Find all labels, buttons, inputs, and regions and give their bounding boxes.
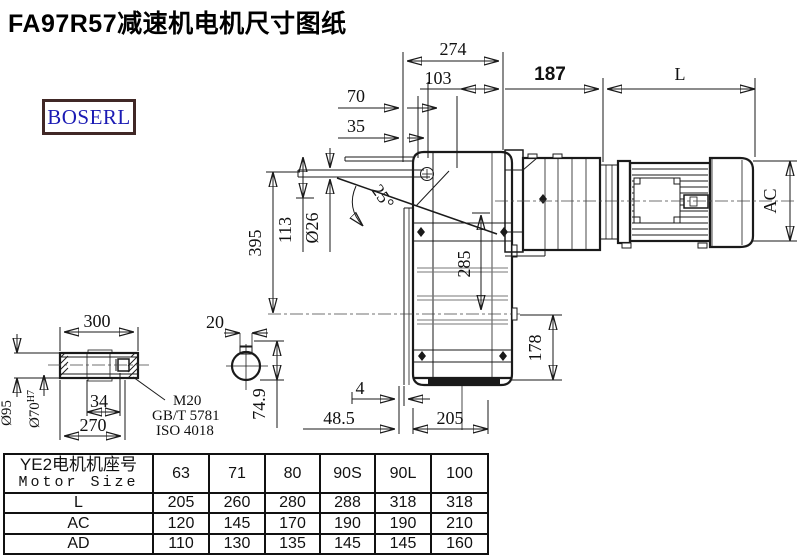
cell-AC-80: 170 (265, 513, 320, 534)
cell-AC-63: 120 (153, 513, 209, 534)
cell-AD-63: 110 (153, 534, 209, 554)
cell-AC-90S: 190 (320, 513, 375, 534)
dim-20: 20 (206, 312, 224, 332)
row-label-AD: AD (4, 534, 153, 554)
dim-70: 70 (347, 86, 365, 106)
col-90L: 90L (375, 454, 431, 493)
cell-L-90L: 318 (375, 493, 431, 513)
dim-103: 103 (425, 68, 452, 88)
cell-L-80: 280 (265, 493, 320, 513)
col-90S: 90S (320, 454, 375, 493)
col-63: 63 (153, 454, 209, 493)
bolt-standard-iso: ISO 4018 (156, 423, 214, 439)
table-row-AC: AC 120 145 170 190 190 210 (4, 513, 488, 534)
cell-L-100: 318 (431, 493, 488, 513)
table-row-L: L 205 260 280 288 318 318 (4, 493, 488, 513)
dim-270: 270 (80, 415, 107, 435)
cell-AD-80: 135 (265, 534, 320, 554)
dim-48-5: 48.5 (323, 408, 355, 428)
top-dimensions: 274 103 70 35 (338, 39, 503, 168)
cell-AC-71: 145 (209, 513, 265, 534)
drawing-sheet: FA97R57减速机电机尺寸图纸 BOSERL 274 103 70 (0, 0, 800, 555)
dim-74-9: 74.9 (249, 388, 269, 420)
dim-300: 300 (84, 311, 111, 331)
dim-205: 205 (437, 408, 464, 428)
col-80: 80 (265, 454, 320, 493)
dim-113: 113 (275, 217, 295, 243)
dim-274: 274 (440, 39, 467, 59)
table-header-motor-size: YE2电机机座号 Motor Size (4, 454, 153, 493)
gearbox-housing (268, 152, 520, 385)
dim-25deg: 25° (367, 181, 398, 213)
input-shaft-lever (298, 157, 497, 234)
cell-AD-90L: 145 (375, 534, 431, 554)
cell-AC-90L: 190 (375, 513, 431, 534)
cell-L-71: 260 (209, 493, 265, 513)
dim-34: 34 (90, 391, 108, 411)
dim-70H7: Ø70H7 (26, 390, 43, 428)
cell-AC-100: 210 (431, 513, 488, 534)
bolt-size-label: M20 (173, 393, 201, 409)
dim-35: 35 (347, 116, 365, 136)
cell-L-63: 205 (153, 493, 209, 513)
dim-26: Ø26 (302, 213, 322, 244)
col-71: 71 (209, 454, 265, 493)
motor-size-table: YE2电机机座号 Motor Size 63 71 80 90S 90L 100… (3, 453, 489, 555)
dim-187: 187 (534, 64, 566, 85)
dim-4: 4 (356, 378, 365, 398)
bottom-dimensions: 4 48.5 205 (303, 378, 488, 434)
dim-178: 178 (525, 335, 545, 362)
motor (495, 158, 795, 248)
r57-gear-unit (505, 150, 600, 256)
dim-95: Ø95 (0, 400, 15, 426)
dim-285: 285 (454, 251, 474, 278)
table-row-AD: AD 110 130 135 145 145 160 (4, 534, 488, 554)
dim-395: 395 (245, 230, 265, 257)
bolt-leader-line (133, 377, 165, 400)
cell-AD-90S: 145 (320, 534, 375, 554)
col-100: 100 (431, 454, 488, 493)
left-dimensions: 395 113 Ø26 25° (245, 148, 398, 313)
motor-length-dimensions: 187 L (505, 64, 755, 162)
cell-L-90S: 288 (320, 493, 375, 513)
cell-AD-71: 130 (209, 534, 265, 554)
row-label-AC: AC (4, 513, 153, 534)
row-label-L: L (4, 493, 153, 513)
dim-L: L (675, 64, 686, 84)
cell-AD-100: 160 (431, 534, 488, 554)
shaft-sleeve-detail: 300 Ø95 Ø70H7 (0, 311, 220, 440)
bolt-standard-gbt: GB/T 5781 (152, 408, 220, 424)
